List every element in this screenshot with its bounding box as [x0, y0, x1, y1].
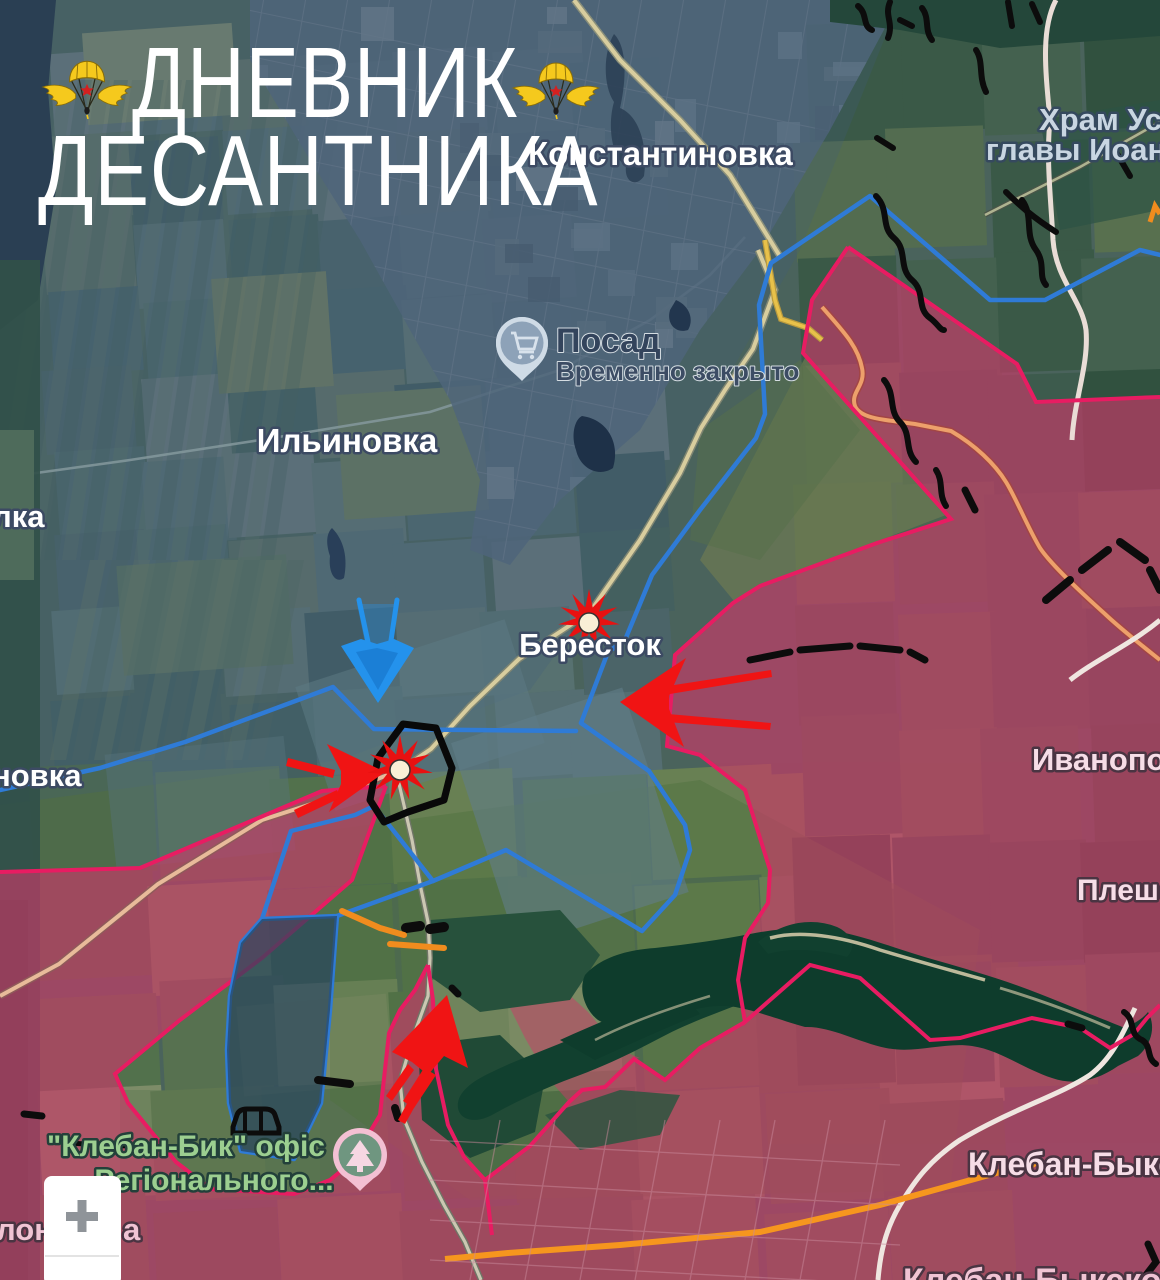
svg-text:Плеше: Плеше — [1077, 874, 1160, 907]
svg-text:Клебан-Быкское: Клебан-Быкское — [903, 1262, 1160, 1280]
svg-text:ДЕСАНТНИКА: ДЕСАНТНИКА — [38, 115, 598, 227]
svg-text:лка: лка — [0, 499, 45, 534]
svg-text:главы Иоанн: главы Иоанн — [986, 132, 1160, 167]
svg-text:а: а — [123, 1212, 141, 1247]
svg-text:новка: новка — [0, 758, 82, 793]
svg-text:Клебан-Быкс: Клебан-Быкс — [968, 1146, 1160, 1182]
svg-text:Бересток: Бересток — [519, 627, 661, 662]
svg-text:Временно закрыто: Временно закрыто — [556, 356, 799, 386]
svg-text:"Клебан-Бик" офіс: "Клебан-Бик" офіс — [47, 1130, 325, 1163]
svg-text:Посад: Посад — [556, 322, 661, 360]
svg-text:Иванополь: Иванополь — [1032, 742, 1160, 777]
svg-text:Регіонального...: Регіонального... — [94, 1164, 333, 1197]
svg-text:Ильиновка: Ильиновка — [257, 422, 438, 459]
